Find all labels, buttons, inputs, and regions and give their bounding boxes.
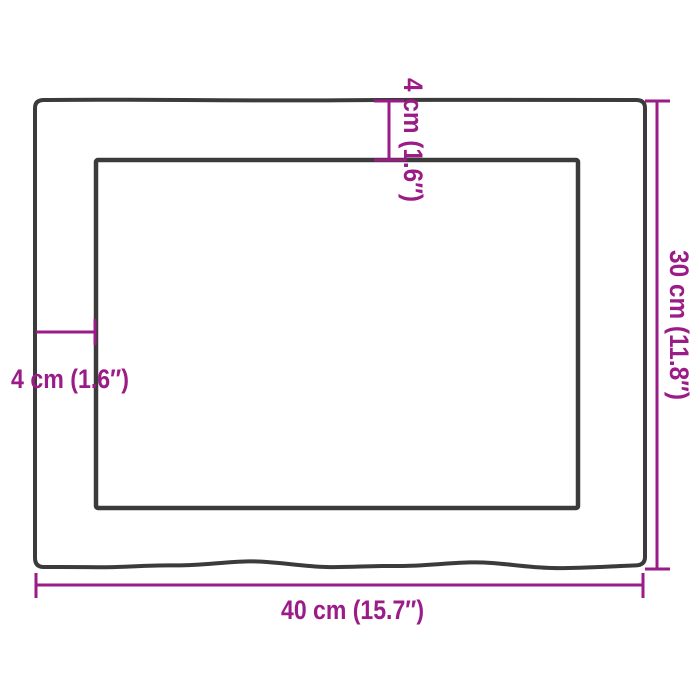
top-inset-measure: 4 cm (1.6″) xyxy=(374,78,428,202)
width-label: 40 cm (15.7″) xyxy=(281,595,424,625)
left-inset-label: 4 cm (1.6″) xyxy=(11,364,129,394)
height-label: 30 cm (11.8″) xyxy=(664,250,694,400)
top-inset-label: 4 cm (1.6″) xyxy=(398,78,428,202)
width-measure: 40 cm (15.7″) xyxy=(36,573,643,625)
inner-panel-outline xyxy=(96,160,578,508)
left-inset-measure: 4 cm (1.6″) xyxy=(11,319,129,394)
dimension-diagram-canvas: 4 cm (1.6″) 4 cm (1.6″) 30 cm (11.8″) 40… xyxy=(0,0,700,700)
outer-board-outline xyxy=(35,100,645,568)
height-measure: 30 cm (11.8″) xyxy=(645,101,694,569)
dimension-diagram: 4 cm (1.6″) 4 cm (1.6″) 30 cm (11.8″) 40… xyxy=(0,0,700,700)
